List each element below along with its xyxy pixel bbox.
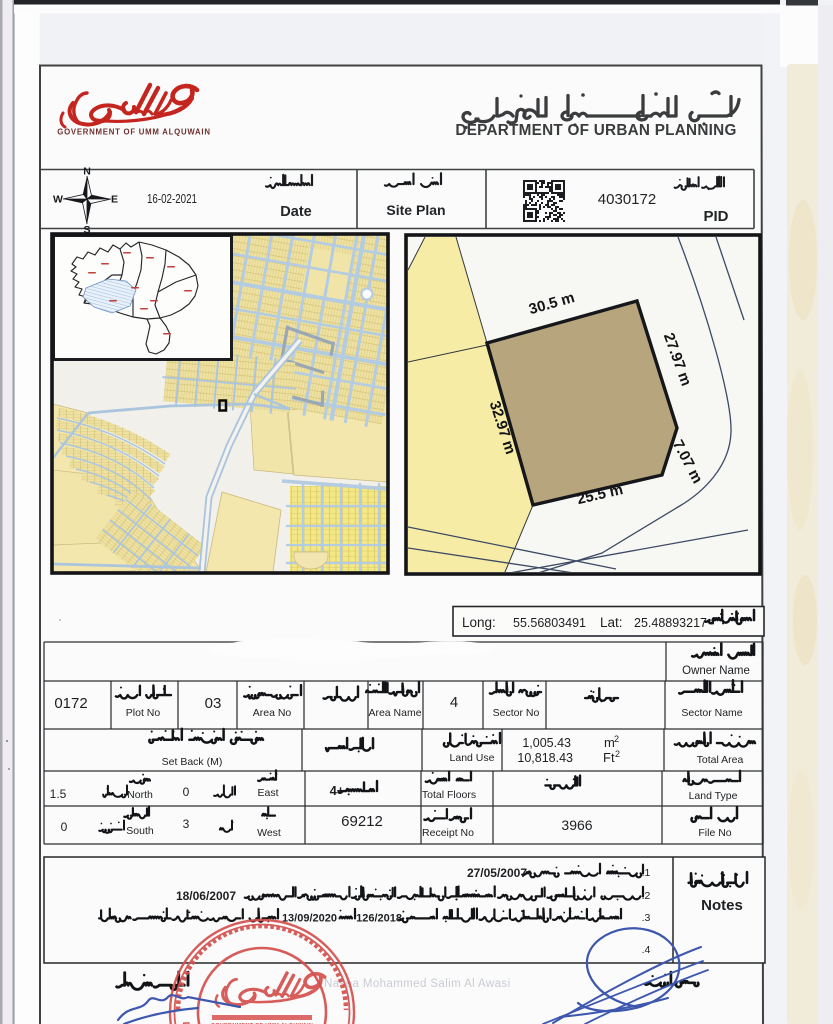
svg-text:Owner Name: Owner Name (682, 665, 750, 677)
svg-text:South: South (126, 825, 154, 837)
svg-text:13/09/2020: 13/09/2020 (282, 913, 337, 925)
svg-text:PID: PID (703, 208, 728, 225)
svg-text:Sector Name: Sector Name (681, 707, 742, 719)
svg-text:Land Use: Land Use (450, 752, 495, 764)
svg-text:Site Plan: Site Plan (386, 202, 445, 218)
svg-text:.3: .3 (642, 912, 651, 924)
svg-text:Plot No: Plot No (126, 707, 161, 719)
svg-text:2: 2 (614, 734, 619, 744)
svg-text:4030172: 4030172 (598, 191, 656, 208)
svg-text:Sector No: Sector No (493, 707, 540, 719)
svg-text:Long:: Long: (462, 615, 496, 630)
svg-text:N: N (83, 166, 91, 178)
svg-text:File No: File No (698, 827, 731, 839)
svg-text:27/05/2007: 27/05/2007 (467, 866, 527, 880)
svg-text:.4: .4 (642, 944, 651, 956)
svg-text:16-02-2021: 16-02-2021 (147, 192, 197, 206)
svg-text:Set Back (M): Set Back (M) (162, 756, 223, 768)
svg-text:1,005.43: 1,005.43 (522, 736, 571, 750)
svg-text:2: 2 (615, 749, 620, 759)
svg-text:18/06/2007: 18/06/2007 (176, 889, 236, 903)
svg-text:Notes: Notes (701, 897, 743, 914)
svg-text:North: North (127, 789, 153, 801)
svg-text:Area Name: Area Name (368, 707, 421, 719)
svg-text:126/2018: 126/2018 (356, 913, 402, 925)
svg-text:E: E (111, 194, 118, 206)
svg-text:1.5: 1.5 (50, 787, 67, 801)
svg-text:69212: 69212 (341, 813, 383, 830)
svg-text:Total Area: Total Area (697, 754, 744, 766)
svg-text:GOVERNMENT OF UMM ALQUWAIN: GOVERNMENT OF UMM ALQUWAIN (57, 128, 210, 137)
svg-text:10,818.43: 10,818.43 (517, 751, 573, 765)
svg-text:West: West (257, 827, 281, 839)
svg-text:25.48893217: 25.48893217 (634, 616, 707, 630)
svg-text:55.56803491: 55.56803491 (513, 616, 586, 630)
svg-text:Ft: Ft (603, 750, 615, 765)
svg-text:0: 0 (61, 820, 68, 834)
svg-text:Lat:: Lat: (600, 615, 623, 630)
svg-text:4: 4 (450, 694, 458, 711)
svg-text:DEPARTMENT OF URBAN PLANNING: DEPARTMENT OF URBAN PLANNING (455, 122, 736, 139)
svg-text:Date: Date (280, 204, 311, 220)
svg-text:3966: 3966 (561, 817, 592, 833)
svg-text:Land Type: Land Type (689, 790, 738, 802)
svg-text:Receipt No: Receipt No (422, 827, 474, 839)
svg-text:Area No: Area No (253, 707, 292, 719)
svg-text:0172: 0172 (54, 695, 87, 712)
svg-text:Total Floors: Total Floors (422, 789, 476, 801)
svg-text:W: W (53, 194, 63, 206)
svg-text:0: 0 (183, 785, 190, 799)
svg-text:3: 3 (183, 817, 190, 831)
svg-text:East: East (257, 787, 278, 799)
svg-text:03: 03 (205, 695, 222, 712)
